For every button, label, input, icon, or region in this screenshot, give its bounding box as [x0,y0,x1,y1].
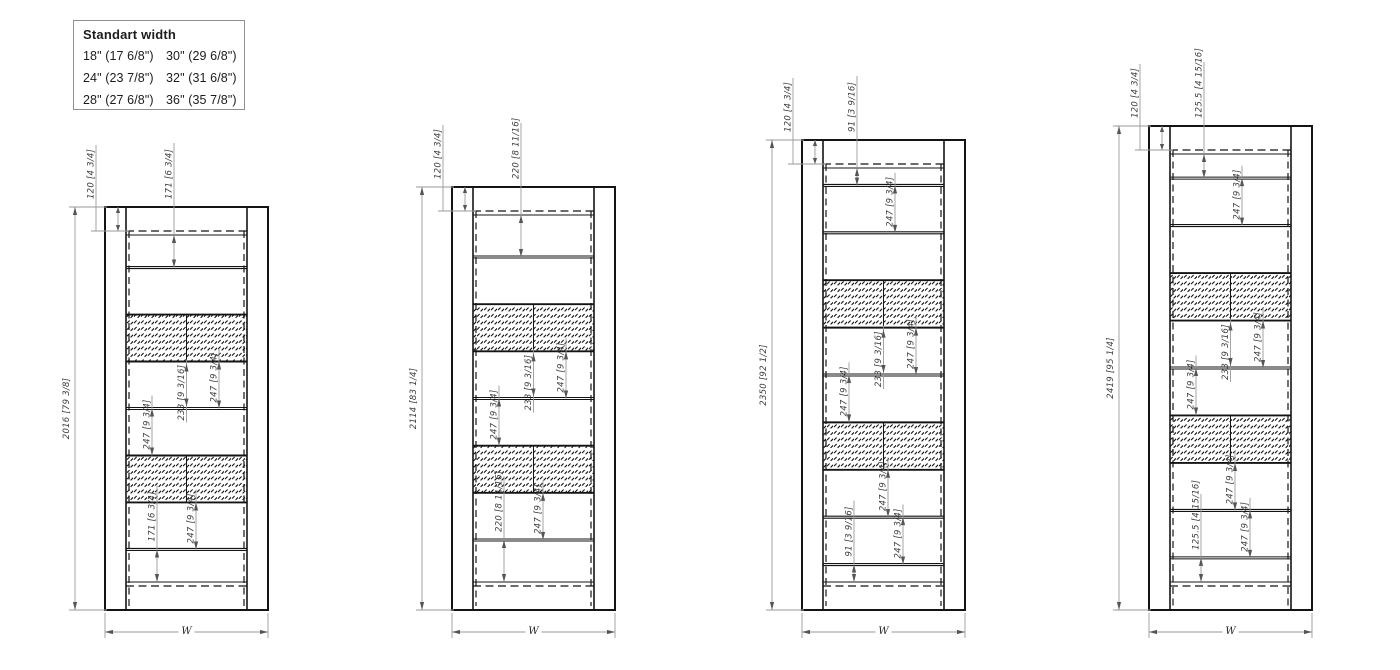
legend-size: 24" (23 7/8") [83,71,166,85]
dimension-label: 247 [9 3/4] [894,508,904,558]
dimension-label: 125.5 [4 15/16] [1192,480,1202,550]
dimension-label: 91 [3 9/16] [848,82,858,132]
dimension-label: 91 [3 9/16] [845,506,855,556]
dimension-label: 220 [8 11/16] [495,471,505,532]
dimension-label: 247 [9 3/4] [1233,169,1243,219]
panel-drawing-3: 91 [3 9/16]247 [9 3/4]247 [9 3/4]233 [9 … [759,76,965,638]
dimension-label: 247 [9 3/4] [490,390,500,440]
panel-drawing-4: 125.5 [4 15/16]247 [9 3/4]247 [9 3/4]233… [1106,48,1312,638]
panels-group: 171 [6 3/4]247 [9 3/4]233 [9 3/16]247 [9… [62,48,1312,638]
dimension-label: 171 [6 3/4] [165,149,175,199]
legend-size-table: 18" (17 6/8") 30" (29 6/8") 24" (23 7/8"… [83,45,244,111]
dimension-label: 247 [9 3/4] [1187,359,1197,409]
dimension-label: 220 [8 11/16] [512,118,522,179]
dimension-label: 247 [9 3/4] [1254,312,1264,362]
dimension-label: 2016 [79 3/8] [62,378,72,439]
dimension-label: 247 [9 3/4] [886,177,896,227]
dimension-label: 233 [9 3/16] [524,355,534,411]
dimension-label: 247 [9 3/4] [557,342,567,392]
dimension-label: 247 [9 3/4] [840,366,850,416]
dimension-label: 2419 [95 1/4] [1106,337,1116,398]
panel-drawing-1: 171 [6 3/4]247 [9 3/4]233 [9 3/16]247 [9… [62,143,268,638]
panel-drawing-2: 220 [8 11/16]247 [9 3/4]233 [9 3/16]247 … [409,118,615,638]
legend-title: Standart width [83,27,244,42]
dimension-label: 247 [9 3/4] [1226,454,1236,504]
legend-size: 32" (31 6/8") [166,71,244,85]
legend-size: 30" (29 6/8") [166,49,244,63]
dimension-label: 247 [9 3/4] [1241,502,1251,552]
technical-drawing-page: 171 [6 3/4]247 [9 3/4]233 [9 3/16]247 [9… [0,0,1400,670]
legend-size: 28" (27 6/8") [83,93,166,107]
dimension-label: 233 [9 3/16] [874,331,884,387]
dimension-label: 2114 [83 1/4] [409,368,419,429]
standard-width-legend: Standart width 18" (17 6/8") 30" (29 6/8… [73,20,245,110]
dimension-label: 247 [9 3/4] [143,399,153,449]
dimension-label: 247 [9 3/4] [879,461,889,511]
dimension-label: 120 [4 3/4] [784,82,794,132]
width-dimension-label: W [878,626,889,637]
dimension-label: 120 [4 3/4] [1131,68,1141,118]
dimension-label: 233 [9 3/16] [1221,324,1231,380]
dimension-label: 247 [9 3/4] [534,484,544,534]
width-dimension-label: W [528,626,539,637]
dimension-label: 171 [6 3/4] [148,491,158,541]
dimension-label: 247 [9 3/4] [210,352,220,402]
dimension-label: 120 [4 3/4] [87,149,97,199]
dimension-label: 233 [9 3/16] [177,365,187,421]
legend-size: 18" (17 6/8") [83,49,166,63]
dimension-label: 2350 [92 1/2] [759,344,769,405]
dimension-label: 120 [4 3/4] [434,129,444,179]
width-dimension-label: W [181,626,192,637]
width-dimension-label: W [1225,626,1236,637]
dimension-label: 125.5 [4 15/16] [1195,48,1205,118]
dimension-label: 247 [9 3/4] [907,319,917,369]
dimension-label: 247 [9 3/4] [187,493,197,543]
legend-size: 36" (35 7/8") [166,93,244,107]
